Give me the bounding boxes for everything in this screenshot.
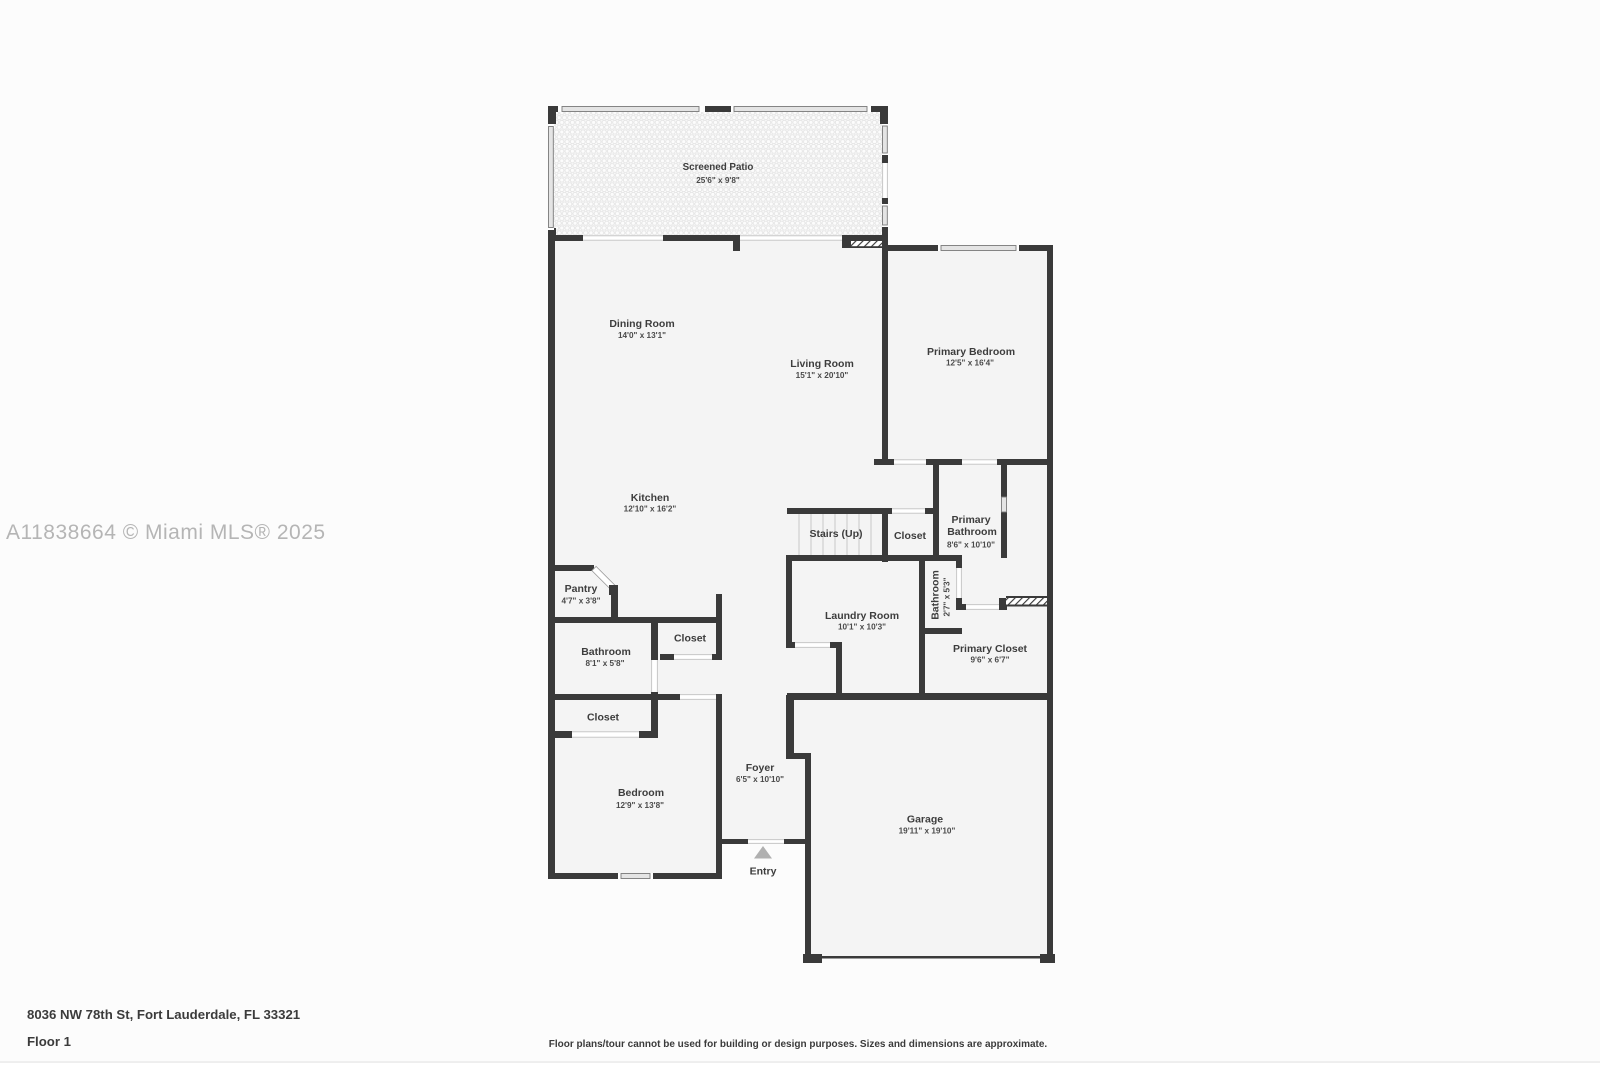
svg-text:Closet: Closet [587, 712, 620, 724]
svg-text:12'5" x 16'4": 12'5" x 16'4" [946, 359, 994, 368]
svg-text:25'6" x 9'8": 25'6" x 9'8" [696, 176, 740, 185]
svg-text:Bedroom: Bedroom [618, 787, 664, 799]
svg-text:Closet: Closet [674, 633, 707, 645]
svg-text:Floor plans/tour cannot be use: Floor plans/tour cannot be used for buil… [549, 1039, 1048, 1050]
svg-text:9'6" x 6'7": 9'6" x 6'7" [971, 656, 1010, 665]
svg-text:Pantry: Pantry [565, 583, 598, 595]
svg-text:Bathroom: Bathroom [947, 526, 997, 538]
svg-text:Screened Patio: Screened Patio [683, 162, 754, 173]
svg-text:10'1" x 10'3": 10'1" x 10'3" [838, 623, 886, 632]
svg-text:12'10" x 16'2": 12'10" x 16'2" [624, 505, 677, 514]
svg-text:14'0" x 13'1": 14'0" x 13'1" [618, 331, 666, 340]
svg-text:12'9" x 13'8": 12'9" x 13'8" [616, 801, 664, 810]
svg-text:Bathroom: Bathroom [930, 570, 942, 620]
svg-text:15'1" x 20'10": 15'1" x 20'10" [796, 371, 849, 380]
svg-text:Garage: Garage [907, 814, 943, 826]
svg-text:19'11" x 19'10": 19'11" x 19'10" [899, 827, 956, 836]
svg-text:Entry: Entry [750, 866, 777, 878]
svg-text:Primary Closet: Primary Closet [953, 643, 1028, 655]
svg-text:Bathroom: Bathroom [581, 646, 631, 658]
svg-text:Foyer: Foyer [746, 762, 775, 774]
svg-text:4'7" x 3'8": 4'7" x 3'8" [562, 597, 601, 606]
svg-text:Dining Room: Dining Room [609, 318, 674, 330]
svg-text:8'1" x 5'8": 8'1" x 5'8" [586, 659, 625, 668]
svg-text:8036 NW 78th St, Fort Lauderda: 8036 NW 78th St, Fort Lauderdale, FL 333… [27, 1007, 300, 1022]
svg-text:A11838664 © Miami MLS® 2025: A11838664 © Miami MLS® 2025 [6, 521, 326, 544]
svg-text:Laundry Room: Laundry Room [825, 610, 899, 622]
svg-text:Stairs (Up): Stairs (Up) [809, 528, 862, 540]
svg-text:8'6" x 10'10": 8'6" x 10'10" [947, 541, 995, 550]
svg-text:Living Room: Living Room [790, 358, 854, 370]
svg-text:Kitchen: Kitchen [631, 492, 670, 504]
svg-text:6'5" x 10'10": 6'5" x 10'10" [736, 775, 784, 784]
svg-text:Closet: Closet [894, 530, 927, 542]
svg-text:Floor 1: Floor 1 [27, 1034, 71, 1049]
svg-text:Primary: Primary [951, 514, 990, 526]
svg-text:Primary Bedroom: Primary Bedroom [927, 346, 1015, 358]
svg-text:2'7" x 5'3": 2'7" x 5'3" [943, 577, 952, 616]
